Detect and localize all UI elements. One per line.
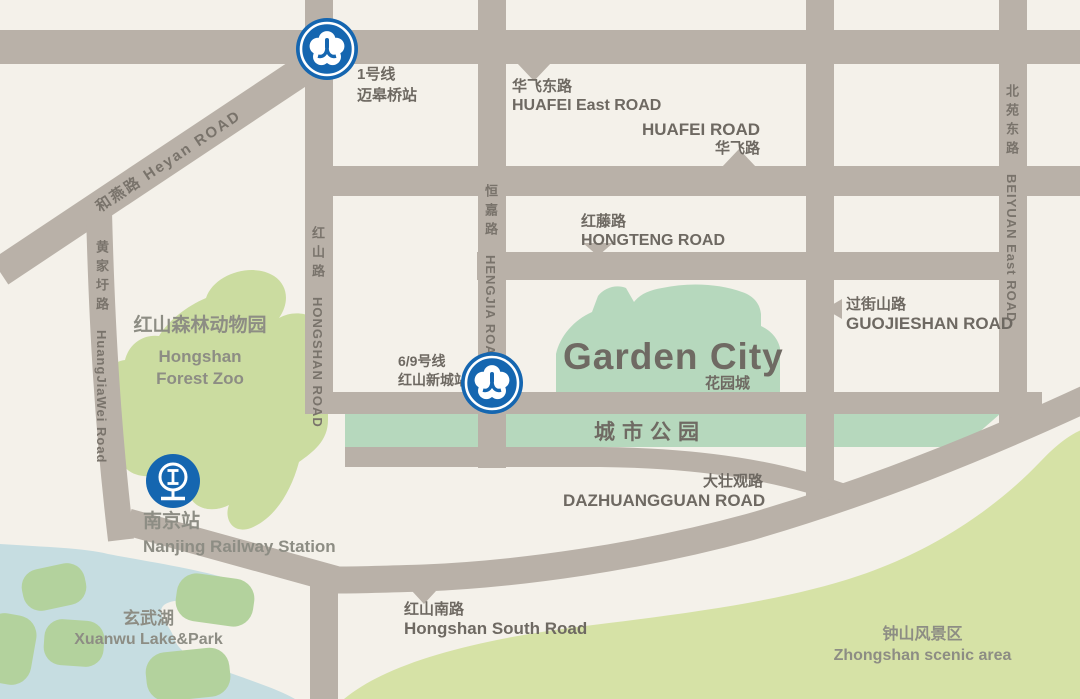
label-road-huangjiawei: 黄家圩路HuangJiaWei Road	[92, 240, 111, 464]
road-name-zh: 红藤路	[581, 213, 725, 231]
road-name-en: HONGTENG ROAD	[581, 231, 725, 250]
road-name-en: HUAFEI East ROAD	[512, 96, 661, 115]
china-railway-logo-icon	[146, 454, 200, 508]
road-huafei-east	[0, 30, 1080, 64]
road-name-zh: 华飞路	[560, 140, 760, 158]
road-name-en: HENGJIA ROAD	[483, 255, 498, 366]
road-name-zh: 红山南路	[404, 601, 587, 619]
scenic-name-en: Zhongshan scenic area	[820, 647, 1025, 665]
road-name-en: HUAFEI ROAD	[560, 120, 760, 140]
nanjing-metro-logo-icon	[461, 352, 523, 414]
metro-line69-name: 6/9号线	[398, 352, 468, 371]
road-name-zh: 大壮观路	[563, 473, 763, 491]
road-name-zh: 北苑东路	[1004, 84, 1019, 160]
zoo-name-en-line2: Forest Zoo	[110, 368, 290, 390]
label-road-hongshan-south: 红山南路 Hongshan South Road	[404, 601, 587, 639]
road-name-en: HuangJiaWei Road	[94, 330, 109, 464]
label-hongshan-zoo: 红山森林动物园 Hongshan Forest Zoo	[110, 310, 290, 390]
label-city-park: 城市公园	[555, 416, 745, 446]
road-name-zh: 华飞东路	[512, 78, 661, 96]
metro-line1-station: 迈皋桥站	[357, 85, 417, 106]
road-name-zh: 黄家圩路	[94, 240, 109, 316]
label-metro-line1-station: 1号线 迈皋桥站	[357, 64, 417, 106]
railway-station-icon	[146, 454, 200, 508]
metro-station-icon	[296, 18, 358, 80]
road-guojieshan	[806, 0, 834, 510]
road-hongteng	[477, 252, 1013, 280]
label-road-huafei-east: 华飞东路 HUAFEI East ROAD	[512, 78, 661, 115]
road-name-zh: 红山路	[310, 226, 325, 283]
road-huafei	[305, 166, 1080, 196]
label-garden-city: Garden City	[563, 336, 784, 378]
road-name-en: DAZHUANGGUAN ROAD	[563, 491, 763, 511]
label-road-beiyuan-east: 北苑东路BEIYUAN East ROAD	[1002, 84, 1021, 322]
label-road-hongteng: 红藤路 HONGTENG ROAD	[581, 213, 725, 250]
road-name-en: HONGSHAN ROAD	[310, 297, 325, 428]
zoo-name-en-line1: Hongshan	[110, 346, 290, 368]
location-map: 1号线 迈皋桥站 和燕路 Heyan ROAD 黄家圩路HuangJiaWei …	[0, 0, 1080, 699]
station-name-zh: 南京站	[143, 506, 336, 533]
label-xuanwu-lake: 玄武湖 Xuanwu Lake&Park	[46, 604, 251, 649]
road-name-zh: 恒嘉路	[483, 184, 498, 241]
road-garden-south	[305, 392, 1042, 414]
label-zhongshan-scenic: 钟山风景区 Zhongshan scenic area	[820, 620, 1025, 665]
label-nanjing-station: 南京站 Nanjing Railway Station	[143, 506, 336, 557]
road-name-en: Hongshan South Road	[404, 619, 587, 639]
label-road-hongshan: 红山路HONGSHAN ROAD	[308, 226, 327, 428]
label-road-huafei: HUAFEI ROAD 华飞路	[560, 120, 760, 158]
nanjing-metro-logo-icon	[296, 18, 358, 80]
zoo-name-zh: 红山森林动物园	[110, 310, 290, 337]
label-road-guojieshan: 过街山路 GUOJIESHAN ROAD	[846, 296, 1013, 334]
metro-station-icon	[461, 352, 523, 414]
road-name-en: GUOJIESHAN ROAD	[846, 314, 1013, 334]
metro-line69-station: 红山新城站	[398, 371, 468, 390]
road-name-zh: 过街山路	[846, 296, 1013, 314]
label-road-dazhuangguan: 大壮观路 DAZHUANGGUAN ROAD	[563, 473, 763, 511]
station-name-en: Nanjing Railway Station	[143, 537, 336, 557]
label-road-hengjia: 恒嘉路HENGJIA ROAD	[481, 184, 500, 366]
lake-name-en: Xuanwu Lake&Park	[46, 631, 251, 649]
label-garden-city-zh: 花园城	[705, 372, 750, 393]
label-metro-line69-station: 6/9号线 红山新城站	[398, 352, 468, 390]
metro-line1-name: 1号线	[357, 64, 417, 85]
scenic-name-zh: 钟山风景区	[820, 620, 1025, 644]
lake-name-zh: 玄武湖	[46, 604, 251, 629]
